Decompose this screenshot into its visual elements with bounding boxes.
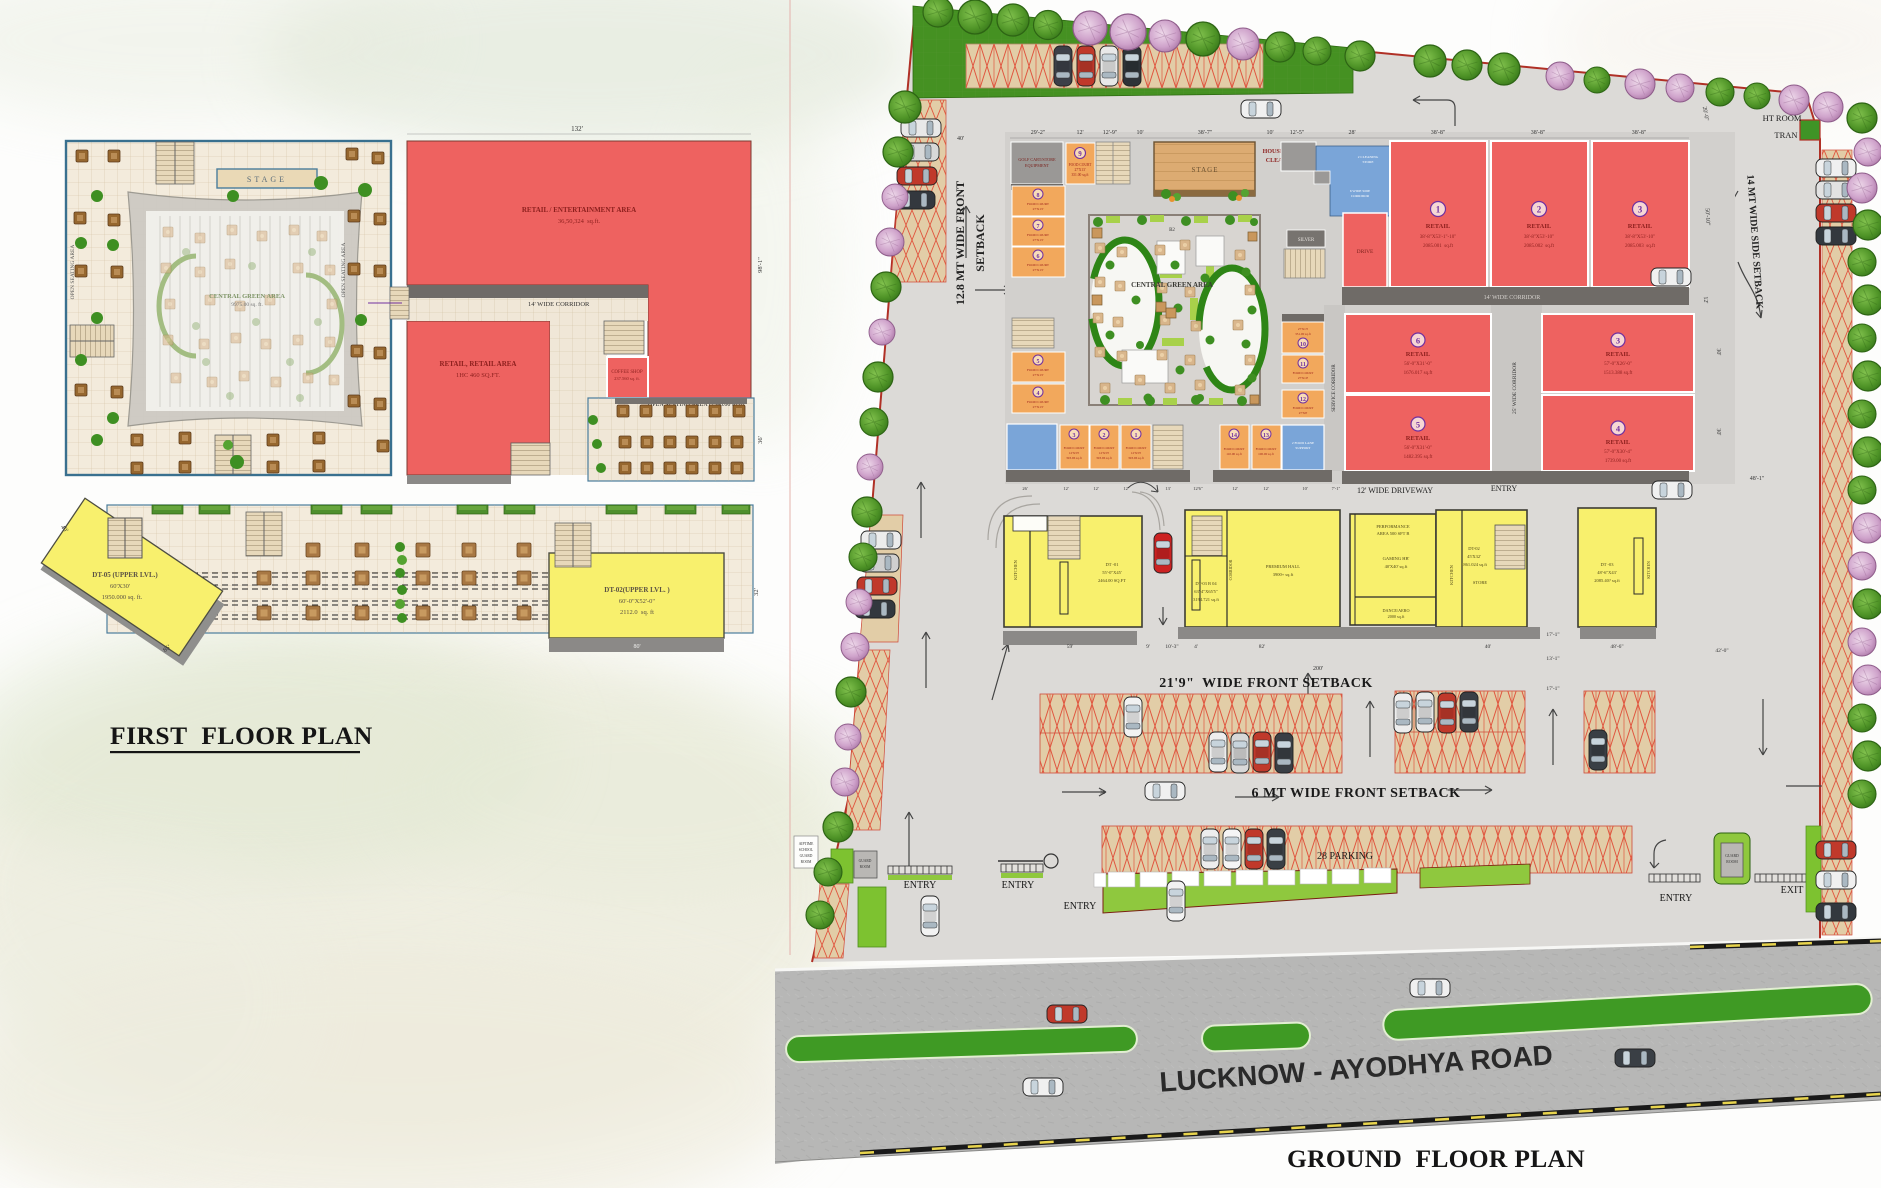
svg-text:200': 200': [1313, 666, 1323, 672]
svg-text:KITCHEN: KITCHEN: [1013, 559, 1018, 579]
svg-text:32': 32': [753, 588, 760, 596]
svg-text:SILVER: SILVER: [1298, 238, 1315, 243]
svg-text:13: 13: [1263, 433, 1269, 439]
svg-text:55'-0"X45': 55'-0"X45': [1102, 570, 1122, 575]
svg-text:9: 9: [1078, 150, 1082, 158]
svg-text:17'-1": 17'-1": [1546, 632, 1559, 638]
svg-text:2085.001 sq.ft: 2085.001 sq.ft: [1423, 244, 1454, 249]
svg-text:27'X13': 27'X13': [1033, 207, 1044, 211]
svg-text:2085.002 sq.ft: 2085.002 sq.ft: [1524, 244, 1555, 249]
svg-text:27'X13': 27'X13': [1033, 373, 1044, 377]
svg-text:7: 7: [1037, 224, 1040, 230]
svg-text:DT-02(UPPER LVL. ): DT-02(UPPER LVL. ): [604, 586, 670, 594]
svg-text:6: 6: [1037, 254, 1040, 260]
svg-text:11: 11: [1300, 362, 1306, 368]
svg-text:10: 10: [1300, 342, 1306, 348]
svg-text:RETAIL / ENTERTAINMENT AREA: RETAIL / ENTERTAINMENT AREA: [522, 206, 636, 214]
svg-text:2: 2: [1103, 433, 1106, 439]
svg-text:56'-0"X31'-0": 56'-0"X31'-0": [1404, 446, 1432, 451]
svg-text:DANCE/AERO: DANCE/AERO: [1383, 608, 1410, 613]
svg-text:ROOM: ROOM: [801, 860, 813, 864]
svg-text:12'-5": 12'-5": [1290, 130, 1305, 136]
svg-text:12': 12': [1123, 486, 1129, 491]
svg-text:3900+ sq.ft: 3900+ sq.ft: [1273, 572, 1294, 577]
svg-text:27'X13': 27'X13': [1074, 168, 1085, 172]
svg-text:B2: B2: [1169, 228, 1175, 233]
svg-text:PREMIUM HALL: PREMIUM HALL: [1266, 564, 1300, 569]
svg-text:80': 80': [633, 644, 640, 650]
svg-text:3: 3: [1073, 433, 1076, 439]
svg-text:36: 36: [1100, 791, 1106, 796]
svg-text:27'X13': 27'X13': [1033, 268, 1044, 272]
svg-text:9975.00 sq. ft.: 9975.00 sq. ft.: [231, 301, 263, 308]
svg-text:12'X33': 12'X33': [1131, 451, 1142, 455]
svg-text:FOOD COURT: FOOD COURT: [1224, 447, 1245, 451]
svg-text:ENTRY: ENTRY: [904, 880, 937, 891]
svg-text:351.00 sq.ft: 351.00 sq.ft: [1295, 332, 1311, 336]
svg-text:63'-4"X65'5": 63'-4"X65'5": [1194, 589, 1218, 594]
svg-text:21'9" WIDE FRONT SETBACK: 21'9" WIDE FRONT SETBACK: [1159, 676, 1372, 691]
svg-text:AIPTIME: AIPTIME: [799, 842, 814, 846]
svg-text:RETAIL: RETAIL: [1628, 223, 1653, 230]
svg-text:2000 sq.ft: 2000 sq.ft: [1388, 614, 1406, 619]
svg-text:1861.024 sq.ft: 1861.024 sq.ft: [1461, 562, 1488, 567]
svg-text:26': 26': [1022, 486, 1028, 491]
svg-text:SUPPORT: SUPPORT: [1295, 446, 1311, 450]
svg-text:17'-1": 17'-1": [1546, 686, 1559, 692]
svg-text:STORE: STORE: [1473, 580, 1487, 585]
svg-text:45'X32': 45'X32': [1467, 554, 1481, 559]
svg-text:RETAIL: RETAIL: [1406, 435, 1431, 442]
svg-text:110.00 sq.ft: 110.00 sq.ft: [1226, 452, 1242, 456]
svg-text:10': 10': [1302, 486, 1308, 491]
svg-text:28 PARKING: 28 PARKING: [1317, 851, 1373, 862]
svg-text:38'-8": 38'-8": [1531, 130, 1546, 136]
svg-text:RETAIL: RETAIL: [1527, 223, 1552, 230]
svg-text:57'-0"X30'-4": 57'-0"X30'-4": [1604, 450, 1632, 455]
svg-text:STORE: STORE: [1362, 160, 1373, 164]
svg-text:12.8 MT WIDE FRONT: 12.8 MT WIDE FRONT: [953, 181, 967, 305]
svg-text:30': 30': [1715, 428, 1721, 435]
svg-text:GOLF CART/STORE: GOLF CART/STORE: [1018, 157, 1056, 162]
svg-text:FOOD COURT: FOOD COURT: [1256, 447, 1277, 451]
svg-text:FOOD COURT: FOOD COURT: [1094, 446, 1115, 450]
svg-text:CORRIDOR: CORRIDOR: [1228, 559, 1233, 580]
svg-text:FIRST FLOOR PLAN: FIRST FLOOR PLAN: [110, 721, 373, 750]
svg-text:CORRIDOR: CORRIDOR: [1351, 194, 1370, 198]
svg-text:1: 1: [1135, 433, 1138, 439]
svg-text:4: 4: [1037, 391, 1040, 397]
svg-text:40': 40': [957, 136, 964, 142]
svg-text:6 MT WIDE FRONT SETBACK: 6 MT WIDE FRONT SETBACK: [1251, 786, 1460, 801]
svg-text:RETAIL: RETAIL: [1606, 439, 1631, 446]
svg-text:59': 59': [1067, 644, 1074, 650]
svg-text:12' WIDE DRIVEWAY: 12' WIDE DRIVEWAY: [1357, 486, 1433, 495]
svg-text:38'-8": 38'-8": [1431, 130, 1446, 136]
svg-text:1: 1: [1436, 205, 1441, 215]
svg-text:1676.017 sq.ft: 1676.017 sq.ft: [1404, 371, 1433, 376]
svg-text:ENTRY: ENTRY: [1491, 484, 1517, 493]
svg-text:SERVICE CORRIDOR: SERVICE CORRIDOR: [1332, 364, 1337, 412]
svg-text:60'X30': 60'X30': [110, 583, 130, 590]
svg-text:STAGE: STAGE: [1192, 166, 1219, 174]
svg-text:5: 5: [1416, 420, 1420, 430]
svg-text:PERFORMANCE: PERFORMANCE: [1376, 524, 1410, 529]
svg-text:12': 12': [1263, 486, 1269, 491]
svg-text:12'X33': 12'X33': [1099, 451, 1110, 455]
svg-text:60'-0"X52'-0": 60'-0"X52'-0": [619, 598, 656, 605]
svg-text:2085.40? sq.ft: 2085.40? sq.ft: [1594, 578, 1620, 583]
svg-text:12': 12': [1093, 486, 1099, 491]
svg-text:12': 12': [1232, 486, 1238, 491]
svg-text:351.00 sq.ft: 351.00 sq.ft: [1071, 173, 1088, 177]
svg-text:100.00 sq.ft: 100.00 sq.ft: [1258, 452, 1274, 456]
svg-text:2464.00 SQ.FT: 2464.00 SQ.FT: [1098, 578, 1126, 583]
svg-text:132': 132': [571, 125, 583, 133]
svg-text:2: 2: [1537, 205, 1542, 215]
svg-text:9': 9': [1146, 644, 1150, 650]
svg-text:12'-9": 12'-9": [1103, 130, 1118, 136]
svg-text:14' WIDE CORRIDOR: 14' WIDE CORRIDOR: [528, 301, 590, 308]
svg-text:237.560 sq. ft.: 237.560 sq. ft.: [614, 376, 640, 381]
svg-text:FOOD COURT: FOOD COURT: [1069, 163, 1092, 167]
svg-text:2 CLEANING: 2 CLEANING: [1358, 155, 1379, 159]
svg-text:3: 3: [1638, 205, 1643, 215]
svg-text:FOOD COURT: FOOD COURT: [1027, 263, 1050, 267]
svg-text:STAGE: STAGE: [247, 175, 287, 184]
svg-text:FOOD COURT: FOOD COURT: [1027, 400, 1050, 404]
svg-text:13': 13': [1165, 486, 1171, 491]
svg-text:10': 10': [1266, 130, 1273, 136]
svg-text:OPEN SEATING AREA: OPEN SEATING AREA: [70, 245, 76, 300]
svg-text:ENTRY: ENTRY: [1660, 893, 1693, 904]
svg-text:RETAIL, RETAIL AREA: RETAIL, RETAIL AREA: [440, 360, 517, 368]
svg-text:38'-8"X53'-10": 38'-8"X53'-10": [1625, 235, 1655, 240]
svg-text:12': 12': [1702, 296, 1708, 303]
svg-text:12: 12: [1300, 397, 1306, 403]
svg-text:7'-1": 7'-1": [1332, 486, 1341, 491]
svg-text:ROOM: ROOM: [1726, 860, 1738, 864]
svg-text:38'-8": 38'-8": [1632, 130, 1647, 136]
svg-text:FOOD COURT: FOOD COURT: [1293, 371, 1314, 375]
svg-text:393.96 sq.ft: 393.96 sq.ft: [1128, 456, 1144, 460]
svg-text:DT -03: DT -03: [1600, 562, 1614, 567]
svg-text:393.96 sq.ft: 393.96 sq.ft: [1066, 456, 1082, 460]
svg-text:2 FOOD LANE: 2 FOOD LANE: [1292, 441, 1314, 445]
svg-text:2112.0 sq. ft: 2112.0 sq. ft: [620, 609, 654, 616]
svg-text:GAMING HB': GAMING HB': [1383, 556, 1410, 561]
svg-text:40'X40' sq.ft: 40'X40' sq.ft: [1385, 564, 1409, 569]
svg-text:SETBACK: SETBACK: [973, 214, 987, 272]
svg-text:TRAN: TRAN: [1774, 130, 1797, 140]
svg-text:14' WIDE CORRIDOR: 14' WIDE CORRIDOR: [1484, 295, 1541, 301]
svg-text:GUARD: GUARD: [800, 854, 813, 858]
svg-text:8: 8: [1037, 193, 1040, 199]
svg-text:10': 10': [1136, 130, 1143, 136]
svg-text:6 WIDE SIDE: 6 WIDE SIDE: [1350, 189, 1370, 193]
svg-text:4': 4': [1194, 644, 1198, 650]
svg-text:48'-1": 48'-1": [1750, 476, 1765, 482]
svg-text:DT-02: DT-02: [1468, 546, 1480, 551]
svg-text:FOOD COURT: FOOD COURT: [1027, 368, 1050, 372]
svg-text:12'6": 12'6": [1193, 486, 1203, 491]
svg-text:30': 30': [1715, 348, 1721, 355]
svg-text:36': 36': [757, 436, 764, 444]
svg-text:ROOM: ROOM: [860, 865, 872, 869]
svg-text:OPEN SEATING AREA: OPEN SEATING AREA: [341, 243, 347, 298]
svg-text:3194.721 sq.ft: 3194.721 sq.ft: [1193, 597, 1220, 602]
svg-text:2085.003 sq.ft: 2085.003 sq.ft: [1625, 244, 1656, 249]
svg-text:42'-0": 42'-0": [1715, 648, 1728, 654]
svg-text:6: 6: [1416, 336, 1420, 346]
svg-text:FOOD COURT: FOOD COURT: [1027, 202, 1050, 206]
svg-text:CENTRAL GREEN AREA: CENTRAL GREEN AREA: [1131, 281, 1213, 289]
svg-text:14: 14: [1231, 433, 1237, 439]
svg-text:1513.388 sq.ft: 1513.388 sq.ft: [1604, 371, 1633, 376]
svg-text:1950.000 sq. ft.: 1950.000 sq. ft.: [102, 594, 143, 601]
svg-text:DRIVE: DRIVE: [1357, 249, 1374, 255]
svg-text:12'X33': 12'X33': [1069, 451, 1080, 455]
svg-text:1482.395 sq.ft: 1482.395 sq.ft: [1404, 455, 1433, 460]
svg-text:48'-6"X43': 48'-6"X43': [1597, 570, 1617, 575]
svg-text:RETAIL: RETAIL: [1406, 351, 1431, 358]
svg-text:12': 12': [1063, 486, 1069, 491]
svg-text:1739.00 sq.ft: 1739.00 sq.ft: [1605, 459, 1632, 464]
svg-text:36,50,324 sq.ft.: 36,50,324 sq.ft.: [558, 218, 601, 225]
svg-text:RETAIL: RETAIL: [1426, 223, 1451, 230]
svg-text:29'-2": 29'-2": [1031, 130, 1046, 136]
svg-text:3: 3: [1616, 336, 1620, 346]
svg-text:38'-8"X53'-10": 38'-8"X53'-10": [1524, 235, 1554, 240]
svg-text:DT-05 (UPPER LVL.): DT-05 (UPPER LVL.): [92, 571, 158, 579]
svg-text:38'-7": 38'-7": [1198, 130, 1213, 136]
svg-text:RETAIL: RETAIL: [1606, 351, 1631, 358]
svg-text:27'X9': 27'X9': [1299, 411, 1308, 415]
svg-text:10'-3": 10'-3": [1165, 644, 1178, 650]
svg-text:GUARD: GUARD: [859, 859, 872, 863]
svg-text:13'-1": 13'-1": [1546, 656, 1559, 662]
svg-text:FOOD COURT: FOOD COURT: [1064, 446, 1085, 450]
svg-text:5: 5: [1037, 359, 1040, 365]
svg-text:38'-8"X53'-1"-10": 38'-8"X53'-1"-10": [1420, 235, 1457, 240]
svg-text:FOOD COURT: FOOD COURT: [1027, 233, 1050, 237]
svg-text:COFFEE SHOP: COFFEE SHOP: [611, 370, 643, 375]
svg-text:48'-6": 48'-6": [1610, 644, 1623, 650]
svg-text:KITCHEN: KITCHEN: [1449, 564, 1454, 584]
svg-text:56'-0"X31'-0": 56'-0"X31'-0": [1404, 362, 1432, 367]
svg-text:27'X13': 27'X13': [1033, 405, 1044, 409]
svg-text:KITCHEN: KITCHEN: [1646, 561, 1651, 579]
svg-text:SCHOOL: SCHOOL: [799, 848, 813, 852]
svg-text:FOOD COURT: FOOD COURT: [1293, 406, 1314, 410]
svg-text:DT -01: DT -01: [1105, 562, 1118, 567]
svg-text:ENTRY: ENTRY: [1064, 901, 1097, 912]
svg-text:50'-10": 50'-10": [1704, 208, 1711, 226]
svg-text:393.96 sq.ft: 393.96 sq.ft: [1096, 456, 1112, 460]
svg-text:AREA 500 SFT B: AREA 500 SFT B: [1377, 531, 1410, 536]
svg-text:EXIT: EXIT: [1781, 885, 1804, 896]
svg-text:27'X10': 27'X10': [1298, 376, 1309, 380]
svg-text:40': 40': [1485, 644, 1492, 650]
svg-text:12': 12': [1076, 130, 1083, 136]
svg-text:FOOD COURT: FOOD COURT: [1126, 446, 1147, 450]
svg-text:EQUIPMENT: EQUIPMENT: [1025, 163, 1050, 168]
svg-text:25' WIDE CORRIDOR: 25' WIDE CORRIDOR: [1512, 362, 1518, 414]
svg-text:28': 28': [1348, 130, 1355, 136]
svg-text:DT-03 B 04: DT-03 B 04: [1195, 581, 1217, 586]
svg-text:GROUND FLOOR PLAN: GROUND FLOOR PLAN: [1287, 1144, 1585, 1173]
svg-text:ENTRY: ENTRY: [1002, 880, 1035, 891]
svg-text:27'X13': 27'X13': [1033, 238, 1044, 242]
svg-text:57'-0"X26'-0": 57'-0"X26'-0": [1604, 362, 1632, 367]
svg-text:GUARD: GUARD: [1725, 854, 1739, 858]
svg-text:27'X13': 27'X13': [1298, 327, 1309, 331]
svg-text:1HC 460 SQ.FT.: 1HC 460 SQ.FT.: [456, 372, 500, 379]
svg-text:CENTRAL GREEN AREA: CENTRAL GREEN AREA: [209, 293, 285, 300]
svg-text:82': 82': [1259, 644, 1266, 650]
svg-text:98'-1": 98'-1": [757, 257, 764, 273]
